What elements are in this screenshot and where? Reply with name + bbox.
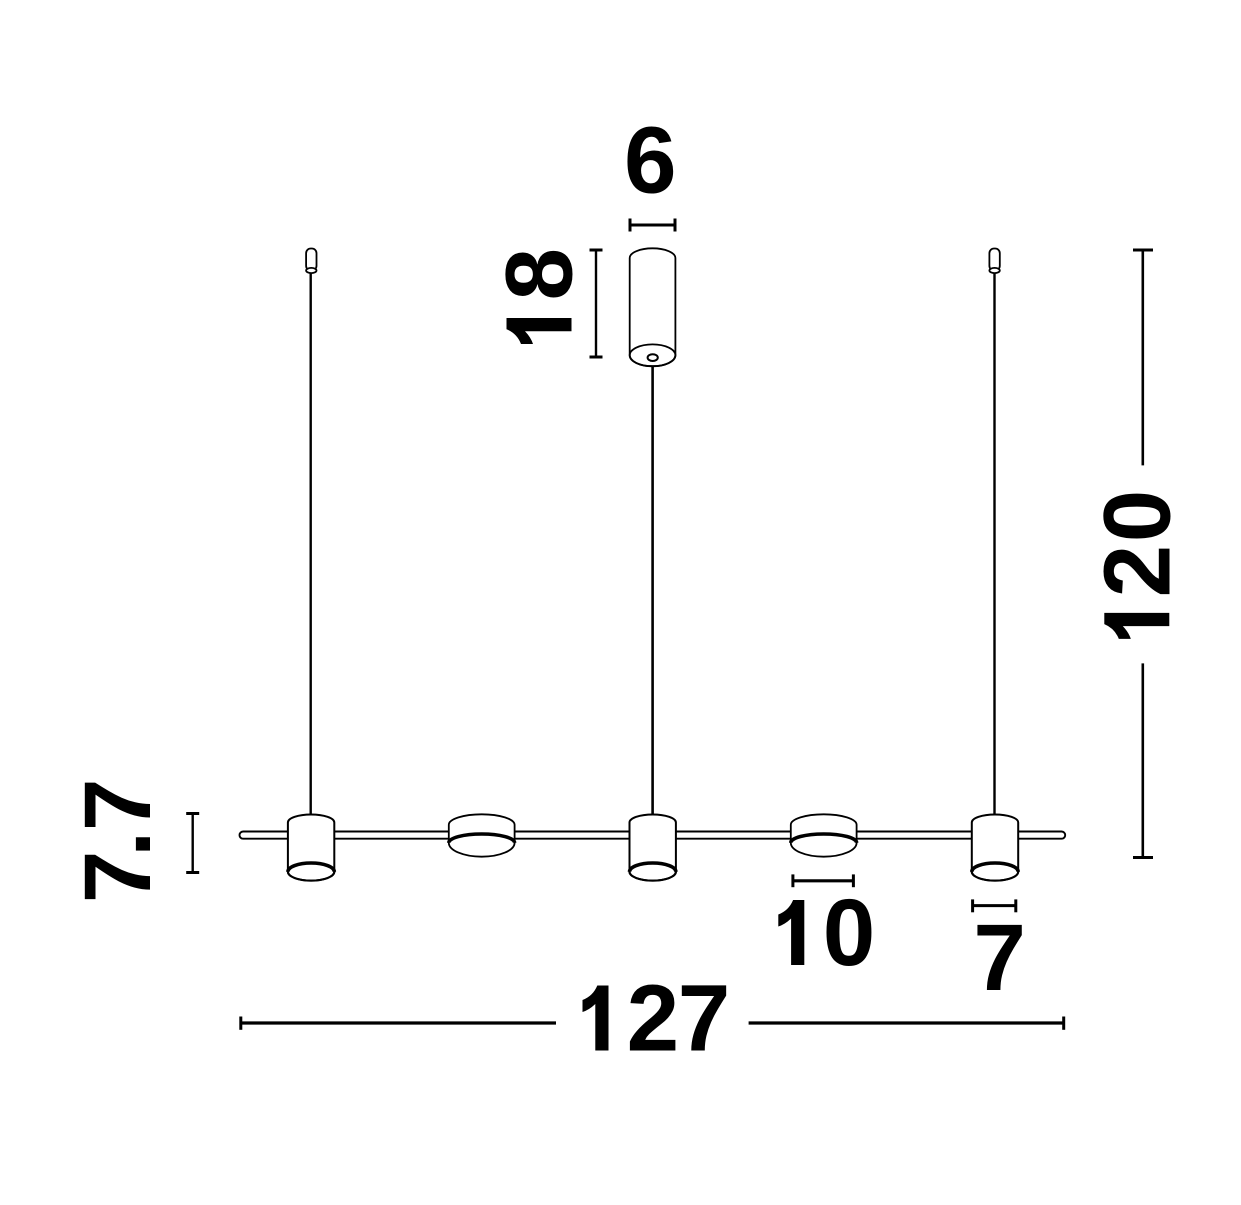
svg-text:7: 7 <box>678 966 731 1072</box>
svg-text:7: 7 <box>65 778 171 831</box>
svg-text:8: 8 <box>487 248 593 301</box>
svg-text:7: 7 <box>65 851 171 904</box>
svg-text:7: 7 <box>973 905 1026 1011</box>
svg-text:0: 0 <box>1084 490 1190 543</box>
svg-text:6: 6 <box>624 107 677 213</box>
svg-text:2: 2 <box>627 966 680 1072</box>
svg-text:2: 2 <box>1084 545 1190 598</box>
svg-text:0: 0 <box>823 880 876 986</box>
svg-text:.: . <box>65 831 171 857</box>
